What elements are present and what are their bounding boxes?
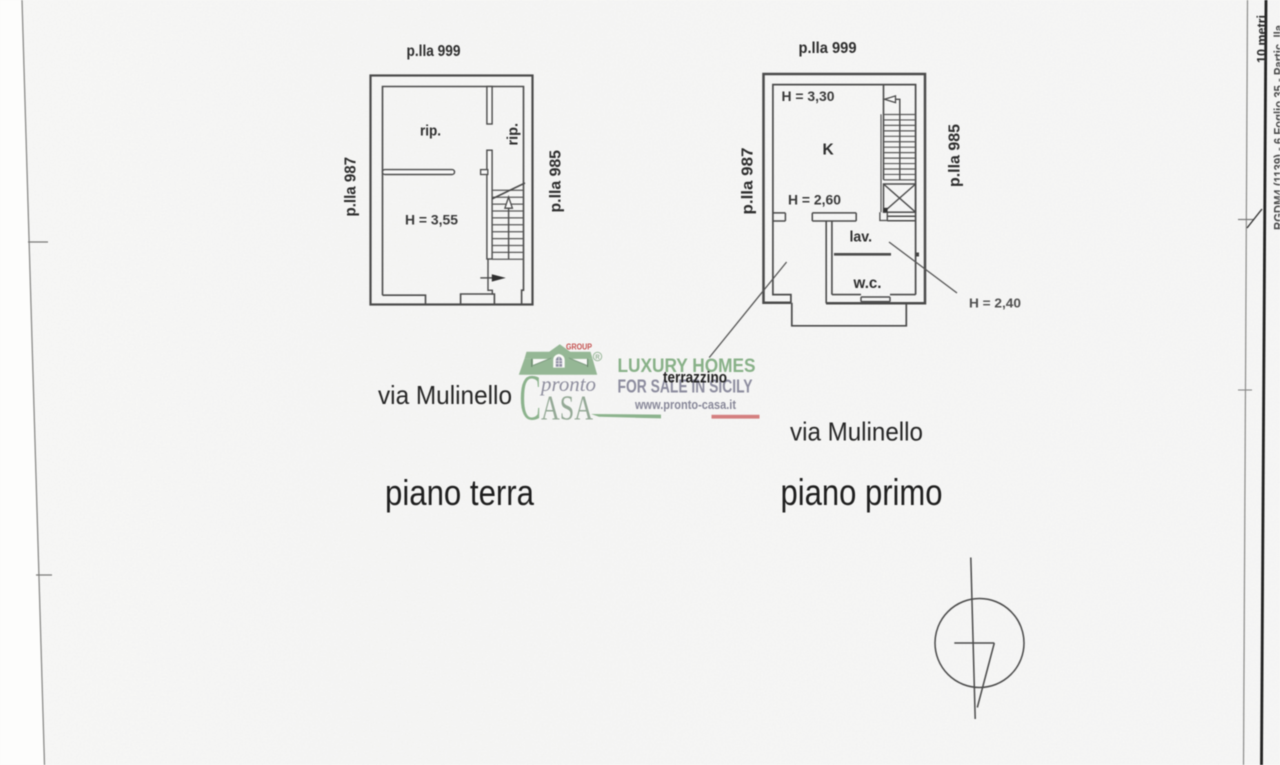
svg-text:K: K	[823, 142, 835, 159]
svg-text:p.lla 999: p.lla 999	[799, 40, 857, 57]
svg-text:w.c.: w.c.	[853, 275, 882, 292]
svg-text:C: C	[520, 362, 542, 435]
svg-text:p.lla 987: p.lla 987	[343, 157, 360, 217]
svg-text:pronto: pronto	[539, 372, 596, 396]
svg-text:H = 2,40: H = 2,40	[969, 295, 1021, 310]
svg-text:RGDM4 (1139) - 6 Foglio 35 - P: RGDM4 (1139) - 6 Foglio 35 - Partic. lla	[1272, 24, 1280, 230]
svg-text:p.lla 999: p.lla 999	[407, 43, 461, 60]
svg-text:p.lla 985: p.lla 985	[548, 150, 565, 213]
svg-text:www.pronto-casa.it: www.pronto-casa.it	[634, 397, 736, 412]
svg-text:H = 2,60: H = 2,60	[788, 192, 841, 207]
svg-text:p.lla 987: p.lla 987	[740, 147, 757, 214]
svg-text:via Mulinello: via Mulinello	[378, 380, 512, 410]
svg-text:10 metri: 10 metri	[1254, 15, 1269, 63]
svg-text:GROUP: GROUP	[566, 343, 593, 352]
svg-text:piano primo: piano primo	[781, 472, 943, 513]
svg-text:R: R	[595, 355, 600, 361]
svg-text:rip.: rip.	[505, 123, 522, 146]
svg-text:p.lla 985: p.lla 985	[947, 124, 964, 187]
svg-text:H = 3,55: H = 3,55	[405, 213, 458, 228]
svg-text:H = 3,30: H = 3,30	[782, 89, 835, 104]
svg-text:terrazzino: terrazzino	[663, 370, 727, 387]
svg-text:via Mulinello: via Mulinello	[790, 416, 923, 446]
svg-text:rip.: rip.	[420, 123, 441, 140]
svg-text:piano terra: piano terra	[385, 472, 535, 513]
svg-text:lav.: lav.	[850, 229, 873, 246]
